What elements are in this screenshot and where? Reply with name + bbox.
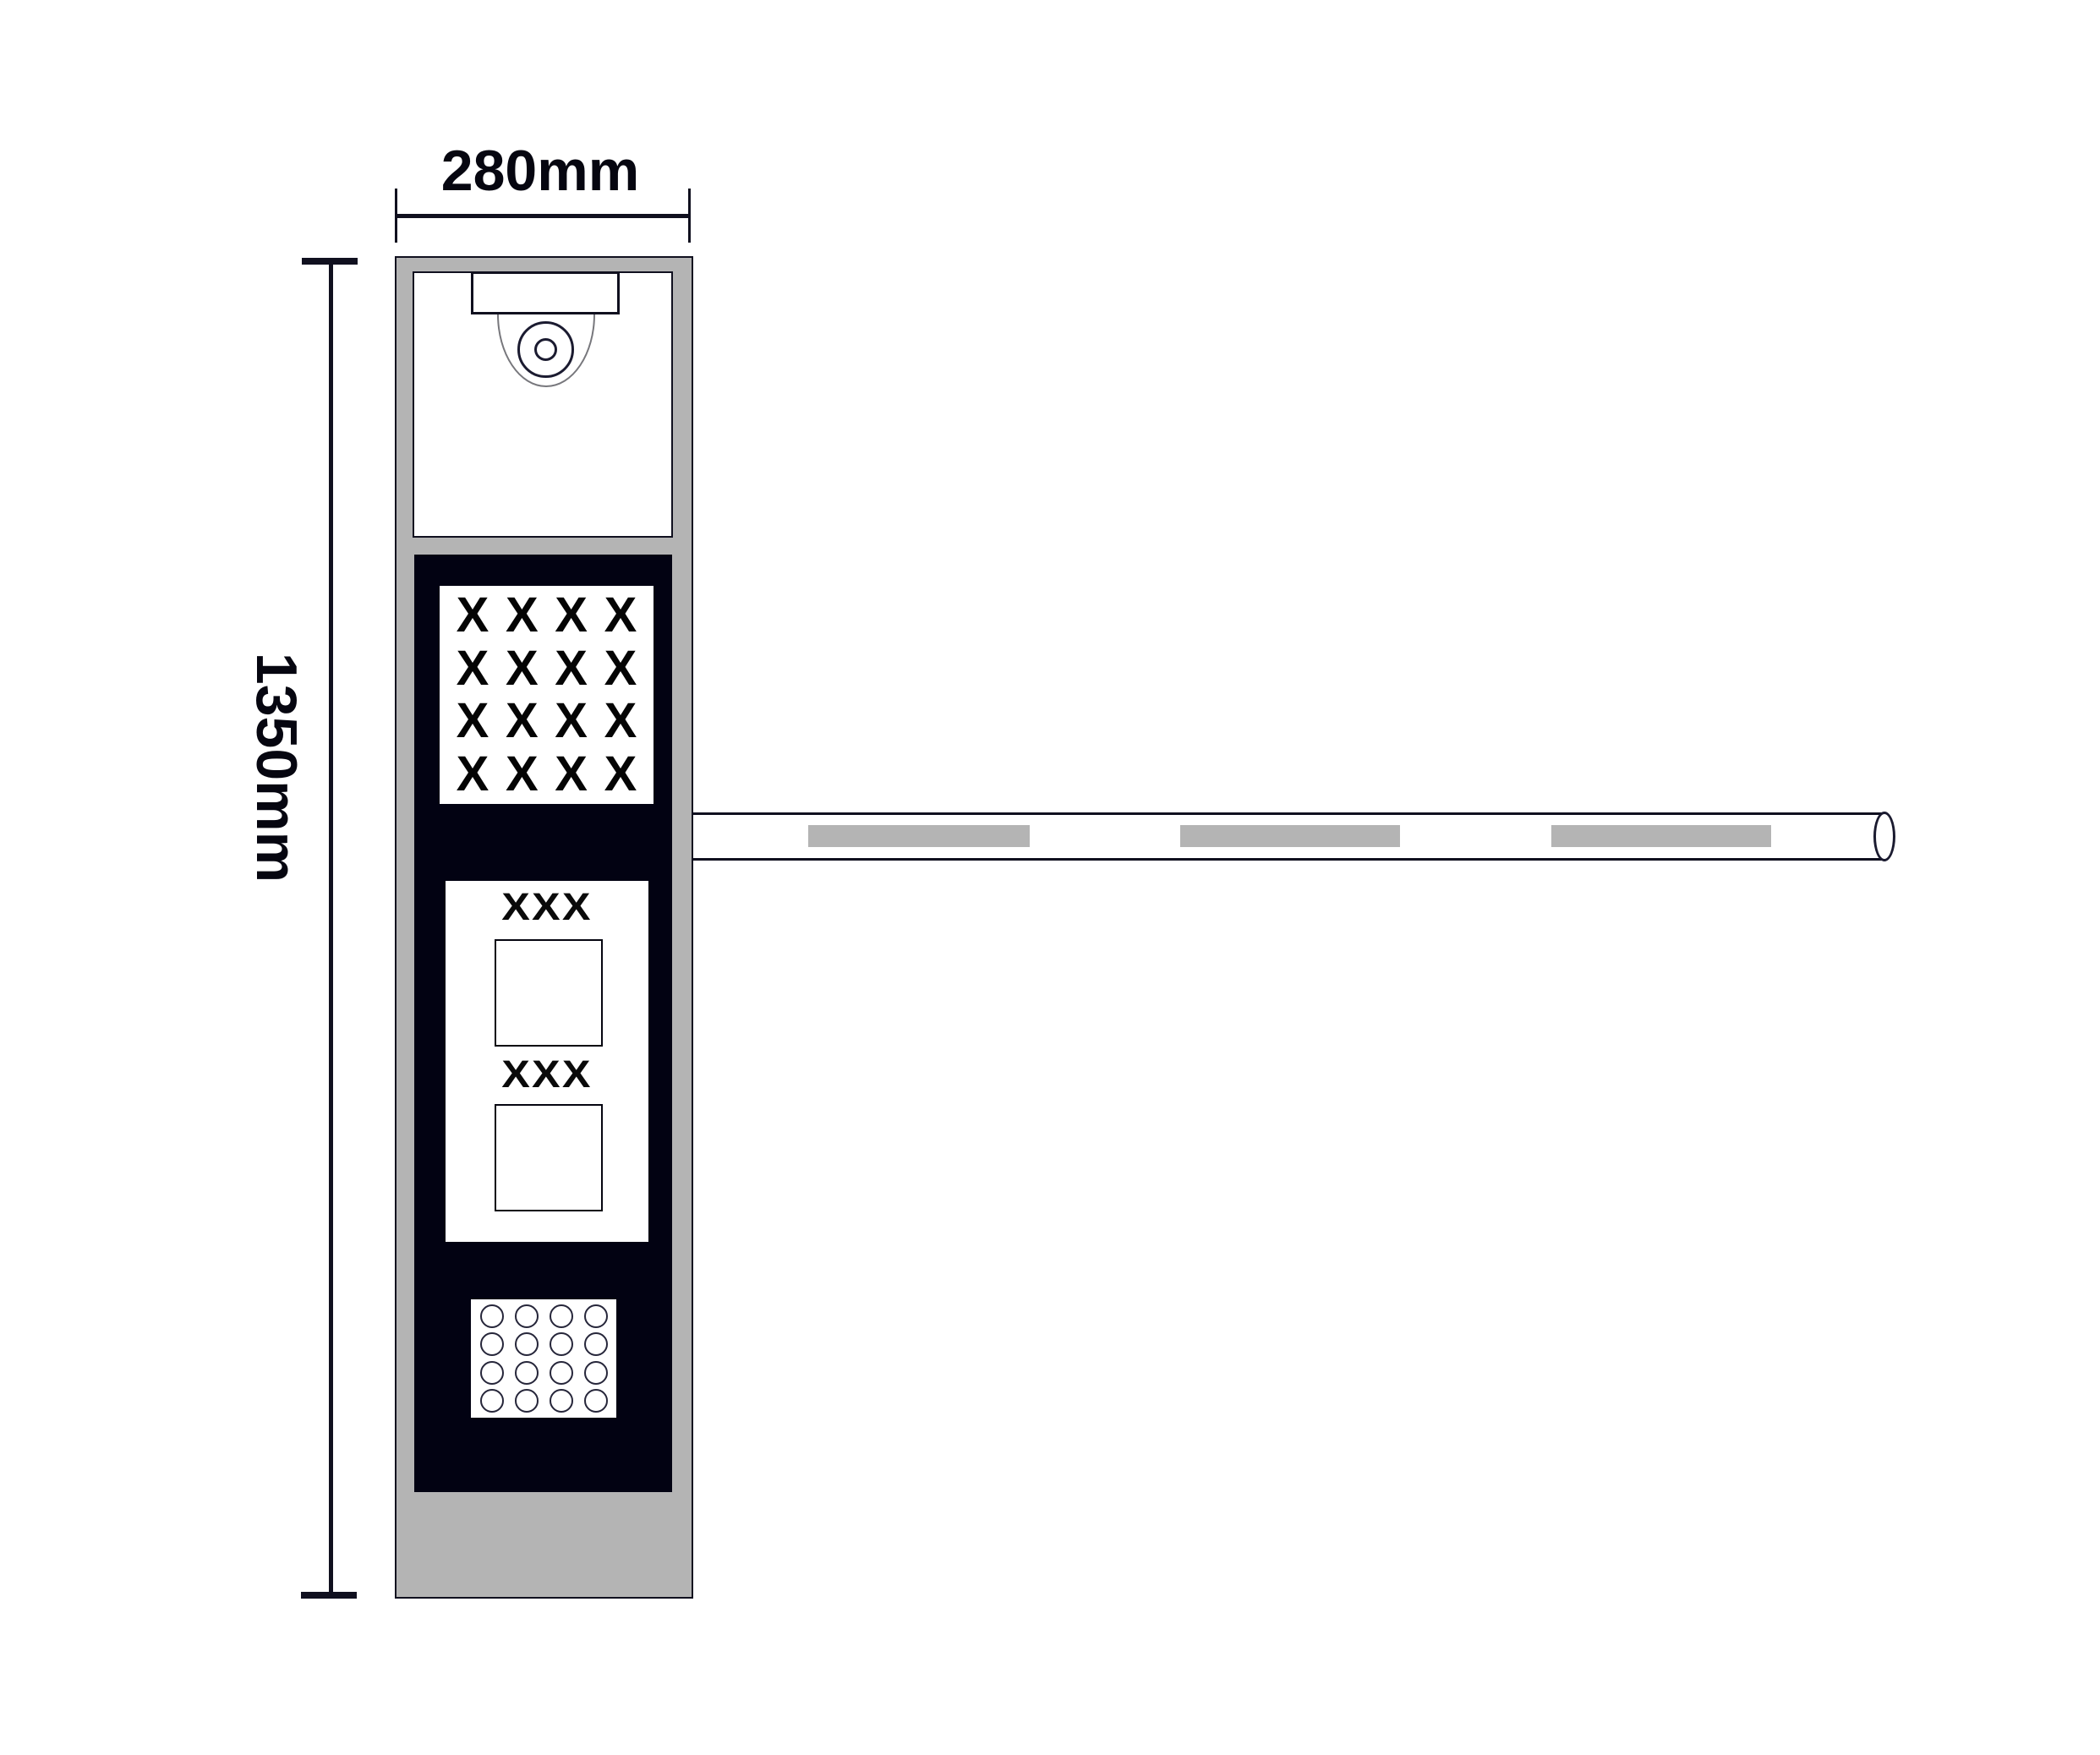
- sign-character: X: [506, 697, 539, 746]
- arm-stripe: [1180, 825, 1400, 847]
- arm-stripe: [808, 825, 1030, 847]
- width-dimension-tick-right: [688, 189, 691, 243]
- sign-character: X: [457, 644, 489, 693]
- height-dimension-tick-bottom: [301, 1592, 357, 1599]
- sign-character: X: [555, 644, 588, 693]
- width-dimension-label: 280mm: [390, 142, 691, 200]
- sign-character: X: [506, 644, 539, 693]
- keypad-button: [480, 1304, 504, 1328]
- sign-character: X: [457, 697, 489, 746]
- barrier-arm-end-cap: [1873, 812, 1895, 861]
- display-screen-2: [495, 1104, 603, 1211]
- keypad-button: [584, 1361, 608, 1385]
- keypad-panel: [471, 1299, 616, 1418]
- sign-character: X: [555, 591, 588, 640]
- sign-text-panel: XXXXXXXXXXXXXXXX: [440, 586, 654, 804]
- keypad-button: [550, 1361, 573, 1385]
- barrier-arm: [692, 812, 1885, 861]
- keypad-button: [515, 1389, 539, 1413]
- barrier-gate-diagram: 280mm 1350mm XXXXXXXXXXXXXXXX XXX XXX: [0, 0, 2100, 1755]
- sign-character: X: [604, 591, 637, 640]
- info-display-panel: XXX XXX: [446, 881, 648, 1242]
- sign-text-row: XXXX: [440, 644, 654, 693]
- sign-character: X: [555, 697, 588, 746]
- sign-character: X: [457, 591, 489, 640]
- display-screen-1: [495, 939, 603, 1047]
- height-dimension-label: 1350mm: [248, 641, 305, 894]
- keypad-button: [480, 1361, 504, 1385]
- sign-text-row: XXXX: [440, 697, 654, 746]
- sign-character: X: [506, 591, 539, 640]
- width-dimension-line: [396, 214, 691, 218]
- sign-text-row: XXXX: [440, 591, 654, 640]
- keypad-button: [515, 1332, 539, 1356]
- keypad-button: [480, 1389, 504, 1413]
- sign-character: X: [555, 750, 588, 799]
- keypad-button: [515, 1361, 539, 1385]
- keypad-button: [480, 1332, 504, 1356]
- camera-lens-inner-icon: [534, 338, 557, 361]
- keypad-button: [550, 1389, 573, 1413]
- height-dimension-tick-top: [302, 258, 358, 265]
- keypad-button: [550, 1332, 573, 1356]
- display-label-1: XXX: [434, 888, 661, 927]
- keypad-button: [550, 1304, 573, 1328]
- sign-character: X: [457, 750, 489, 799]
- sign-character: X: [506, 750, 539, 799]
- arm-stripe: [1551, 825, 1771, 847]
- height-dimension-line: [329, 259, 333, 1596]
- sign-character: X: [604, 644, 637, 693]
- sign-text-row: XXXX: [440, 750, 654, 799]
- keypad-button: [515, 1304, 539, 1328]
- camera-mount-bracket: [471, 271, 620, 314]
- keypad-button: [584, 1389, 608, 1413]
- sign-character: X: [604, 697, 637, 746]
- width-dimension-tick-left: [395, 189, 397, 243]
- sign-character: X: [604, 750, 637, 799]
- keypad-button: [584, 1304, 608, 1328]
- keypad-button: [584, 1332, 608, 1356]
- display-label-2: XXX: [434, 1055, 661, 1094]
